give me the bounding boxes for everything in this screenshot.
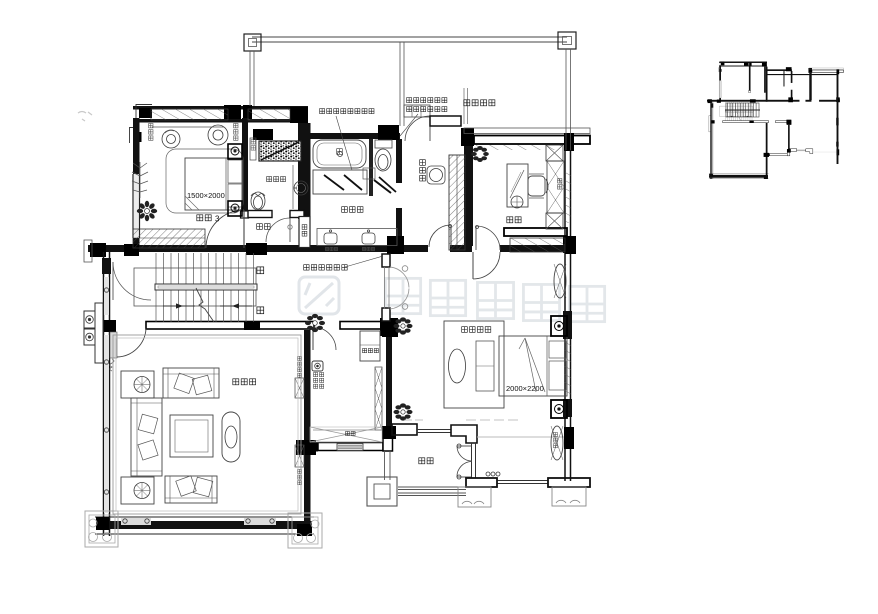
svg-text:2000×2200: 2000×2200 [506, 384, 544, 393]
svg-text:3: 3 [215, 215, 220, 224]
svg-text:1500×2000: 1500×2000 [187, 191, 225, 200]
